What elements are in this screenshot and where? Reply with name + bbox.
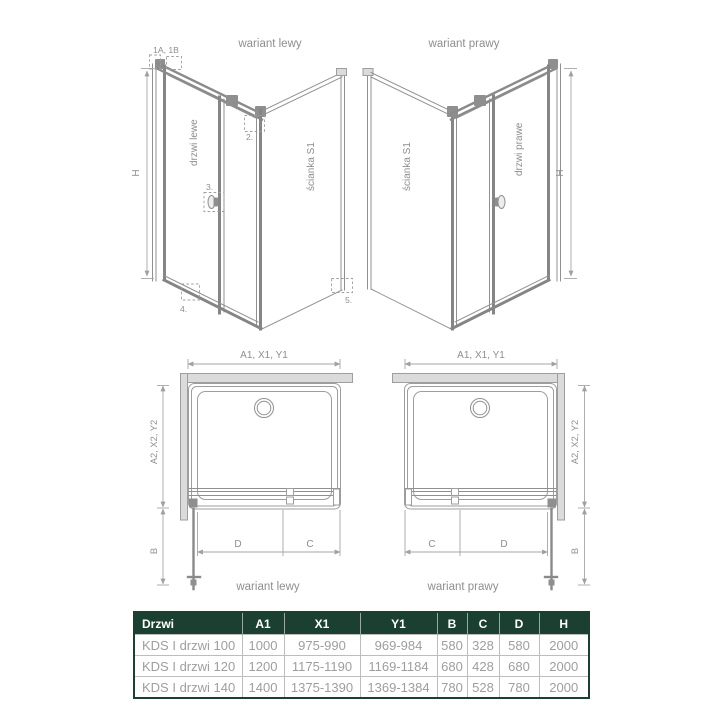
table-row: KDS I drzwi 120 1200 1175-1190 1169-1184… — [134, 656, 589, 677]
plan-right-d-label: D — [500, 539, 507, 550]
plan-left-dc-dimension: D C — [198, 510, 341, 556]
left-variant-3d-diagram: wariant lewy — [130, 30, 380, 350]
plan-right-depth-label: A2, X2, Y2 — [570, 420, 580, 464]
left-3d-h-dimension: H — [131, 69, 154, 279]
left-3d-door-label: drzwi lewe — [189, 119, 200, 166]
plan-left-open-door — [188, 509, 200, 589]
col-header-a1: A1 — [242, 612, 284, 635]
cell-a1: 1200 — [242, 656, 284, 677]
cell-d: 780 — [499, 677, 539, 699]
plan-left-d-label: D — [234, 539, 241, 550]
table-row: KDS I drzwi 100 1000 975-990 969-984 580… — [134, 635, 589, 656]
plan-left-shower-tray — [189, 384, 341, 510]
plan-right-width-label: A1, X1, Y1 — [457, 350, 505, 361]
cell-c: 428 — [467, 656, 499, 677]
plan-left-b-dimension: B — [149, 509, 169, 585]
right-3d-door-label: drzwi prawe — [514, 122, 525, 176]
cell-x1: 1175-1190 — [284, 656, 360, 677]
plan-left-b-label: B — [149, 548, 159, 554]
col-header-c: C — [467, 612, 499, 635]
callout-4: 4. — [180, 304, 187, 314]
cell-d: 580 — [499, 635, 539, 656]
spec-table: Drzwi A1 X1 Y1 B C D H KDS I drzwi 100 1… — [133, 611, 590, 699]
table-row: KDS I drzwi 140 1400 1375-1390 1369-1384… — [134, 677, 589, 699]
cell-y1: 1369-1384 — [360, 677, 437, 699]
plan-left-top-dimension: A1, X1, Y1 — [188, 350, 340, 369]
cell-x1: 1375-1390 — [284, 677, 360, 699]
plan-left-width-label: A1, X1, Y1 — [240, 350, 288, 361]
cell-h: 2000 — [539, 677, 589, 699]
callout-5: 5. — [345, 295, 352, 305]
plan-left-depth-dimension: A2, X2, Y2 — [149, 386, 169, 509]
plan-right-open-door — [545, 509, 557, 589]
plan-right-top-dimension: A1, X1, Y1 — [405, 350, 557, 369]
door-handle-icon — [495, 196, 505, 209]
cell-y1: 1169-1184 — [360, 656, 437, 677]
col-header-h: H — [539, 612, 589, 635]
plan-left-depth-label: A2, X2, Y2 — [149, 420, 159, 464]
left-3d-h-label: H — [131, 169, 142, 176]
plan-right-shower-tray — [405, 384, 557, 510]
col-header-drzwi: Drzwi — [134, 612, 242, 635]
col-header-y1: Y1 — [360, 612, 437, 635]
callout-1a-1b: 1A, 1B — [153, 45, 179, 55]
cell-b: 580 — [437, 635, 467, 656]
plan-left-c-label: C — [306, 539, 313, 550]
right-3d-h-dimension: H — [555, 69, 577, 279]
cell-b: 780 — [437, 677, 467, 699]
plan-right-cd-dimension: C D — [405, 510, 548, 556]
cell-a1: 1400 — [242, 677, 284, 699]
cell-a1: 1000 — [242, 635, 284, 656]
left-3d-wall-label: ścianka S1 — [306, 142, 317, 191]
plan-left-caption: wariant lewy — [235, 581, 300, 593]
left-variant-plan-diagram: A1, X1, Y1 — [140, 348, 390, 600]
cell-model: KDS I drzwi 140 — [134, 677, 242, 699]
cell-model: KDS I drzwi 100 — [134, 635, 242, 656]
table-header-row: Drzwi A1 X1 Y1 B C D H — [134, 612, 589, 635]
right-3d-wall-label: ścianka S1 — [402, 142, 413, 191]
col-header-d: D — [499, 612, 539, 635]
right-variant-plan-diagram: A1, X1, Y1 — [380, 348, 630, 600]
left-3d-callouts: 1A, 1B 2. 3. 4. 5. — [150, 45, 353, 314]
plan-right-b-dimension: B — [570, 509, 590, 585]
callout-2: 2. — [246, 132, 253, 142]
cell-d: 680 — [499, 656, 539, 677]
right-3d-title: wariant prawy — [428, 38, 500, 50]
cell-h: 2000 — [539, 656, 589, 677]
cell-model: KDS I drzwi 120 — [134, 656, 242, 677]
cell-h: 2000 — [539, 635, 589, 656]
left-3d-title: wariant lewy — [237, 38, 302, 50]
cell-c: 328 — [467, 635, 499, 656]
cell-c: 528 — [467, 677, 499, 699]
cell-y1: 969-984 — [360, 635, 437, 656]
right-3d-h-label: H — [555, 169, 566, 176]
plan-right-depth-dimension: A2, X2, Y2 — [570, 386, 590, 509]
cell-x1: 975-990 — [284, 635, 360, 656]
callout-3: 3. — [206, 182, 213, 192]
right-variant-3d-diagram: wariant prawy — [360, 30, 610, 350]
door-handle-icon — [208, 196, 218, 209]
plan-right-b-label: B — [570, 548, 580, 554]
col-header-b: B — [437, 612, 467, 635]
col-header-x1: X1 — [284, 612, 360, 635]
plan-right-c-label: C — [428, 539, 435, 550]
cell-b: 680 — [437, 656, 467, 677]
product-spec-sheet: wariant lewy — [0, 0, 720, 720]
plan-right-caption: wariant prawy — [427, 581, 499, 593]
right-3d-structure — [363, 59, 561, 329]
